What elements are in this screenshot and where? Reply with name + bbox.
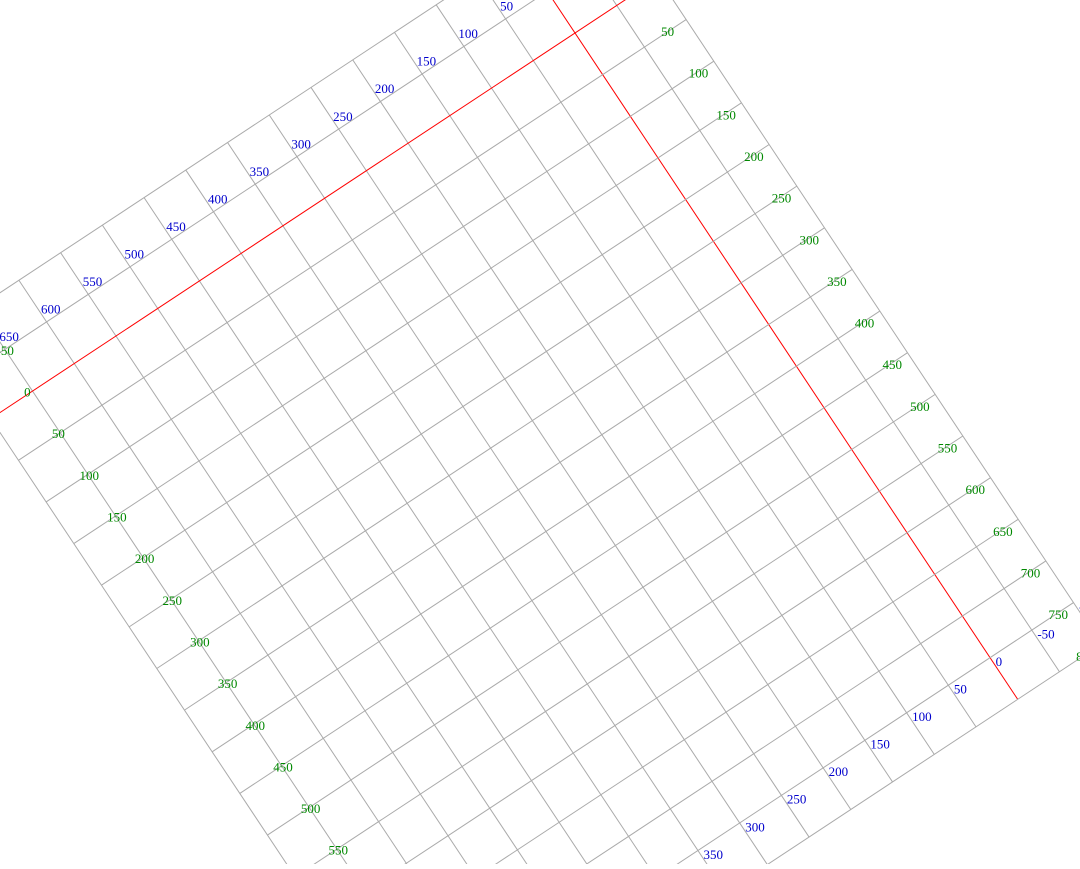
svg-text:400: 400: [855, 316, 875, 331]
svg-text:300: 300: [799, 232, 819, 247]
svg-text:50: 50: [954, 682, 967, 697]
svg-text:100: 100: [689, 66, 709, 81]
svg-text:150: 150: [870, 737, 890, 752]
svg-text:350: 350: [218, 676, 238, 691]
svg-text:500: 500: [910, 399, 930, 414]
svg-text:-50: -50: [1037, 626, 1054, 641]
svg-text:250: 250: [163, 593, 183, 608]
svg-text:650: 650: [993, 524, 1013, 539]
svg-text:250: 250: [787, 792, 807, 807]
svg-text:300: 300: [745, 819, 765, 834]
svg-text:150: 150: [107, 510, 127, 525]
svg-text:550: 550: [329, 843, 349, 858]
svg-text:550: 550: [938, 441, 958, 456]
svg-text:100: 100: [912, 709, 932, 724]
svg-text:750: 750: [1048, 607, 1068, 622]
svg-text:450: 450: [273, 759, 293, 774]
svg-text:50: 50: [661, 24, 674, 39]
svg-text:800: 800: [1076, 649, 1080, 664]
svg-text:150: 150: [716, 107, 736, 122]
svg-text:200: 200: [744, 149, 764, 164]
svg-text:250: 250: [772, 191, 792, 206]
svg-text:50: 50: [52, 426, 65, 441]
svg-text:700: 700: [1021, 565, 1041, 580]
svg-text:50: 50: [500, 0, 513, 14]
svg-text:200: 200: [829, 764, 849, 779]
svg-text:0: 0: [24, 385, 31, 400]
svg-text:-50: -50: [0, 343, 14, 358]
svg-text:500: 500: [301, 801, 321, 816]
svg-text:600: 600: [965, 482, 985, 497]
svg-text:300: 300: [190, 634, 210, 649]
svg-text:350: 350: [827, 274, 847, 289]
svg-text:200: 200: [135, 551, 155, 566]
svg-text:350: 350: [703, 847, 723, 862]
svg-text:0: 0: [996, 654, 1003, 669]
svg-text:450: 450: [882, 357, 902, 372]
svg-text:100: 100: [80, 468, 100, 483]
svg-text:400: 400: [246, 718, 265, 733]
